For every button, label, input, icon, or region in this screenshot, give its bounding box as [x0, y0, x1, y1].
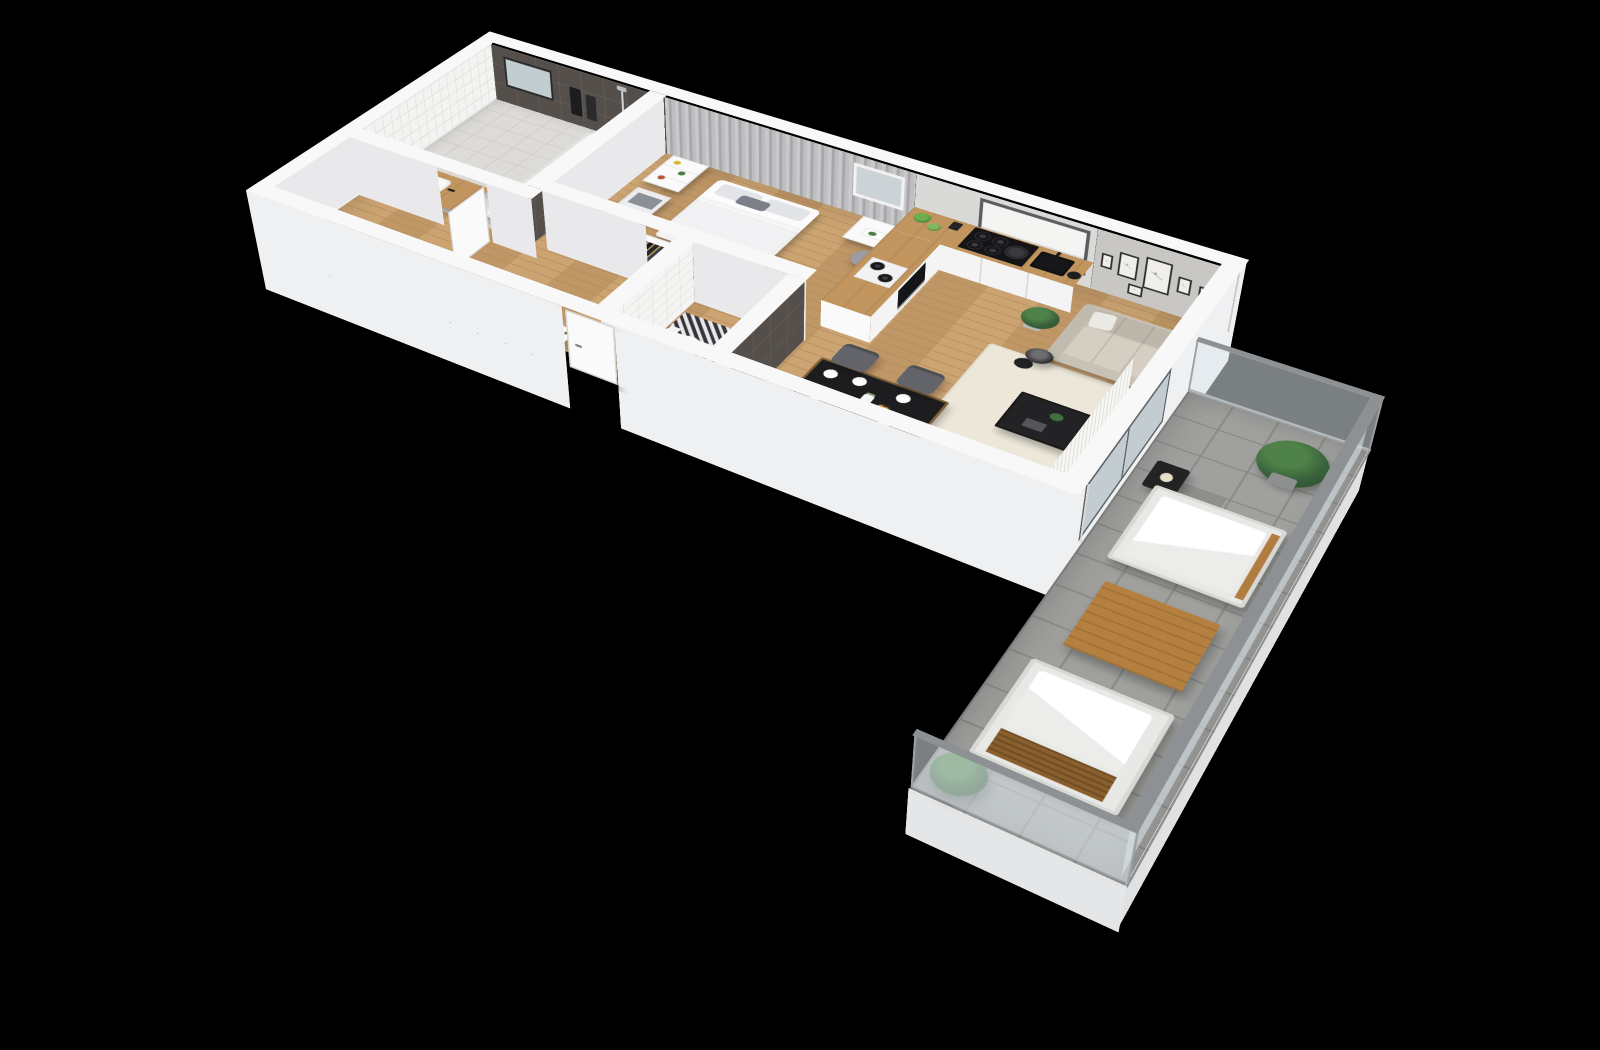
bathroom-mirror	[503, 56, 554, 101]
vanity-mirror	[853, 162, 905, 211]
gallery-frame	[1127, 283, 1143, 297]
table-book	[1021, 418, 1047, 433]
entry-door-handle	[575, 344, 582, 349]
plate	[850, 375, 870, 387]
basin-faucet	[447, 188, 456, 192]
towel	[586, 94, 598, 122]
gallery-frame	[1100, 253, 1113, 270]
gallery-frame	[1176, 276, 1192, 296]
utensil-jar	[948, 221, 964, 231]
herb-pot	[924, 222, 943, 233]
candle	[1158, 471, 1175, 483]
plate	[821, 368, 841, 380]
apartment-plan	[0, 87, 1551, 1050]
table-plant	[1048, 412, 1066, 423]
gallery-frame	[1117, 252, 1139, 281]
plate	[893, 392, 913, 404]
two-ring-warmer	[853, 257, 908, 289]
gallery-frame	[1142, 257, 1173, 296]
towel	[569, 86, 582, 117]
storage-box	[627, 192, 663, 209]
scene-canvas	[0, 0, 1600, 900]
